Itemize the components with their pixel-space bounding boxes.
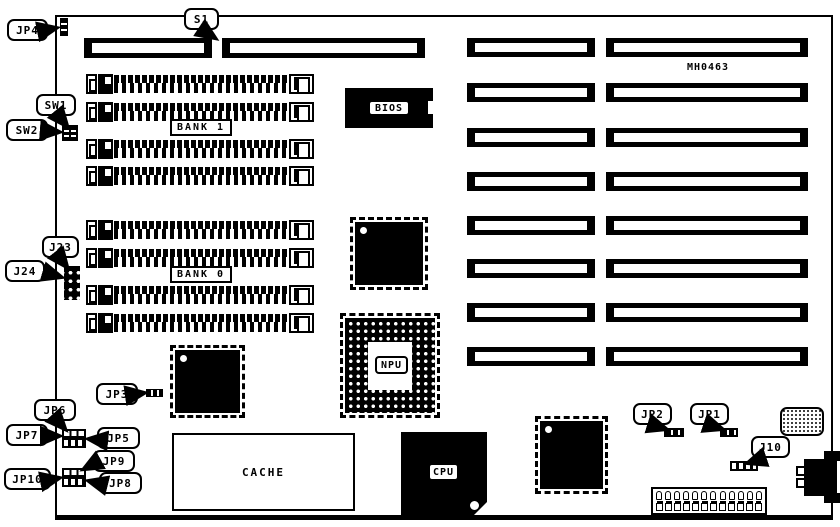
bios-chip-notch [428, 101, 433, 114]
chipset-qfp-chip [355, 222, 423, 285]
power-pin [729, 491, 735, 500]
simm-pin-row [114, 75, 287, 83]
simm-pin-row [114, 175, 287, 185]
io-qfp-chip [540, 421, 603, 489]
bus-slot [467, 83, 595, 102]
callout-jp6: JP6 [34, 399, 76, 421]
callout-jp5: JP5 [97, 427, 140, 449]
callout-jp8: JP8 [99, 472, 142, 494]
simm-right-cap [289, 248, 314, 268]
simm-pin-row [114, 286, 287, 294]
jp2-jumper [664, 428, 684, 437]
power-cell [692, 503, 699, 511]
bank1-label: BANK 1 [170, 119, 232, 136]
power-cell [737, 503, 744, 511]
keyboard-connector-step [824, 493, 840, 503]
bus-slot [606, 259, 808, 278]
cpu-label: CPU [428, 463, 459, 481]
bus-slot [606, 303, 808, 322]
simm-left-cap [86, 220, 97, 240]
power-pin [738, 491, 744, 500]
jp1-jumper [720, 428, 738, 437]
bus-slot [606, 216, 808, 235]
simm-pin-row [114, 148, 287, 158]
npu-socket: NPU [345, 318, 435, 413]
power-pin [692, 491, 698, 500]
bus-slot [606, 172, 808, 191]
jumper-pins [62, 429, 86, 438]
bus-slot [606, 83, 808, 102]
pin1-dot [545, 426, 552, 433]
jumper-caps [62, 438, 86, 448]
power-pin [756, 491, 762, 500]
simm-slot [86, 285, 314, 305]
simm-pin-row [114, 221, 287, 229]
pin1-dot [470, 501, 479, 510]
power-cell [728, 503, 735, 511]
bus-slot [467, 172, 595, 191]
power-pin [656, 491, 662, 500]
callout-jp9: JP9 [93, 450, 135, 472]
simm-right-cap [289, 166, 314, 186]
callout-j23: J23 [42, 236, 79, 258]
simm-pin-row [114, 294, 287, 304]
simm-latch [98, 220, 113, 240]
bus-slot [467, 259, 595, 278]
callout-sw2: SW2 [6, 119, 48, 141]
bus-slot [606, 347, 808, 366]
simm-slot [86, 313, 314, 333]
simm-pin-row [114, 322, 287, 332]
cache-label: CACHE [242, 466, 285, 479]
power-connector [651, 487, 767, 515]
power-cell [755, 503, 762, 511]
simm-slot [86, 248, 314, 268]
jumper-pins [62, 468, 86, 477]
jp5-jp6-jp7-jumper-block [62, 429, 86, 448]
simm-latch [98, 248, 113, 268]
callout-jp4: JP4 [7, 19, 48, 41]
simm-latch [98, 139, 113, 159]
bus-slot [84, 38, 212, 58]
callout-jp10: JP10 [4, 468, 51, 490]
power-cell [674, 503, 681, 511]
keyboard-connector [804, 459, 837, 496]
power-pin [720, 491, 726, 500]
power-pin [710, 491, 716, 500]
simm-pin-row [114, 83, 287, 93]
bus-slot [467, 347, 595, 366]
simm-latch [98, 313, 113, 333]
simm-pin-row [114, 229, 287, 239]
power-pin [747, 491, 753, 500]
bus-slot [467, 38, 595, 57]
simm-left-cap [86, 285, 97, 305]
power-cell [683, 503, 690, 511]
power-cell-row [656, 503, 762, 511]
simm-right-cap [289, 139, 314, 159]
simm-left-cap [86, 139, 97, 159]
keyboard-connector-step [824, 451, 840, 461]
simm-left-cap [86, 166, 97, 186]
power-pin [701, 491, 707, 500]
bus-slot [467, 128, 595, 147]
power-pin [665, 491, 671, 500]
sw1-sw2-dip-switch [62, 125, 78, 141]
simm-pin-row [114, 249, 287, 257]
callout-j24: J24 [5, 260, 45, 282]
simm-slot [86, 74, 314, 94]
simm-left-cap [86, 74, 97, 94]
cache-chip: CACHE [172, 433, 355, 511]
simm-right-cap [289, 313, 314, 333]
power-cell [665, 503, 672, 511]
keyboard-connector-tab [796, 466, 806, 476]
bus-slot [467, 216, 595, 235]
sram-qfp-chip [175, 350, 240, 413]
part-number-label: MH0463 [660, 62, 756, 73]
jp8-jp9-jp10-jumper-block [62, 468, 86, 487]
power-pin [683, 491, 689, 500]
callout-jp3: JP3 [96, 383, 138, 405]
simm-left-cap [86, 102, 97, 122]
cpu-chip: CPU [401, 432, 487, 517]
simm-left-cap [86, 313, 97, 333]
simm-slot [86, 166, 314, 186]
callout-j10: J10 [751, 436, 790, 458]
jp3-jumper [146, 389, 163, 397]
simm-latch [98, 102, 113, 122]
simm-right-cap [289, 74, 314, 94]
simm-latch [98, 166, 113, 186]
bios-label: BIOS [368, 100, 410, 116]
callout-sw1: SW1 [36, 94, 76, 116]
bus-slot [222, 38, 425, 58]
simm-pin-row [114, 140, 287, 148]
callout-jp7: JP7 [6, 424, 48, 446]
power-pin-row [656, 491, 762, 500]
bios-chip: BIOS [345, 88, 433, 128]
bus-slot [467, 303, 595, 322]
simm-right-cap [289, 102, 314, 122]
battery [780, 407, 824, 436]
simm-pin-row [114, 167, 287, 175]
simm-pin-row [114, 103, 287, 111]
simm-slot [86, 139, 314, 159]
simm-right-cap [289, 220, 314, 240]
power-cell [719, 503, 726, 511]
keyboard-connector-tab [796, 478, 806, 488]
simm-right-cap [289, 285, 314, 305]
simm-slot [86, 220, 314, 240]
simm-left-cap [86, 248, 97, 268]
power-pin [674, 491, 680, 500]
power-cell [746, 503, 753, 511]
bank0-label: BANK 0 [170, 266, 232, 283]
callout-jp2: JP2 [633, 403, 672, 425]
power-cell [701, 503, 708, 511]
j10-connector [730, 461, 758, 471]
jumper-caps [62, 477, 86, 487]
power-cell [656, 503, 663, 511]
simm-latch [98, 74, 113, 94]
jp4-jumper [60, 18, 68, 36]
callout-s1: S1 [184, 8, 219, 30]
callout-jp1: JP1 [690, 403, 729, 425]
j23-j24-connector [64, 266, 80, 300]
motherboard-diagram: MH0463 BIOS NPU CACHE CPU BANK 1 BANK 0 [0, 0, 840, 527]
pin1-dot [180, 355, 187, 362]
bus-slot [606, 38, 808, 57]
bus-slot [606, 128, 808, 147]
pin1-dot [360, 227, 367, 234]
power-cell [710, 503, 717, 511]
simm-latch [98, 285, 113, 305]
npu-label: NPU [375, 356, 408, 374]
simm-pin-row [114, 314, 287, 322]
